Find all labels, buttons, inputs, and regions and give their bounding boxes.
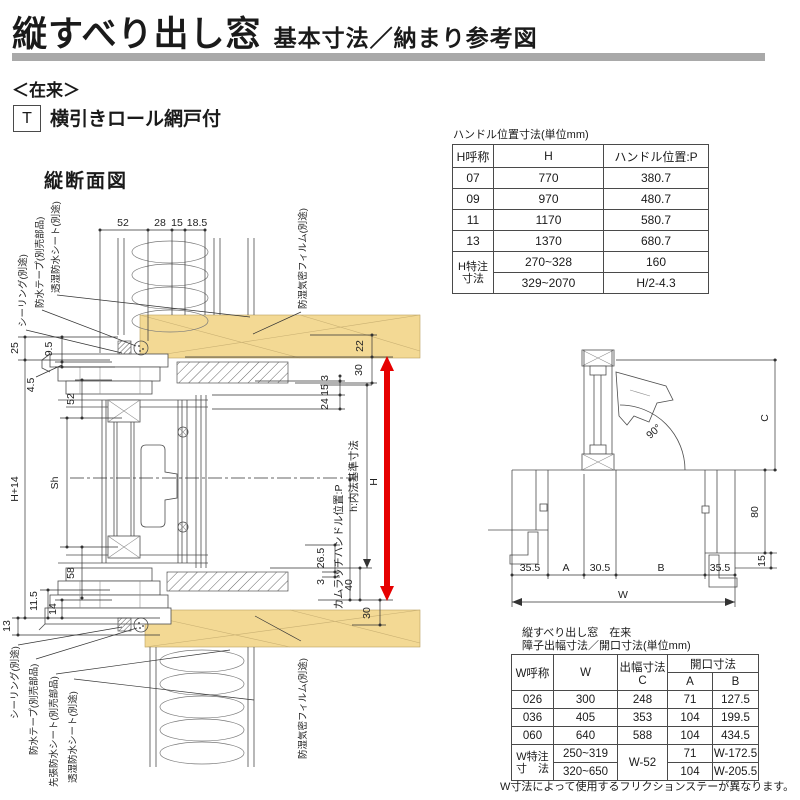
plan-view-drawing: 90° C 80 15 35.5 A 30.5 B 35.5 W <box>480 330 800 625</box>
width-table-note: W寸法によって使用するフリクションステーが異なります。 <box>500 778 794 794</box>
handle-table-header-row: H呼称 H ハンドル位置:P <box>453 145 709 168</box>
width-dimension-table: W呼称 W 出幅寸法C 開口寸法 A B 026 300 248 71 127.… <box>511 654 759 781</box>
cell-w-name: 036 <box>512 709 554 727</box>
dim-28-top: 28 <box>154 217 166 229</box>
dim-h-label: H <box>368 478 380 486</box>
cell-h: 1170 <box>494 210 604 231</box>
col-w-name: W呼称 <box>512 655 554 691</box>
cell-c: 588 <box>618 727 668 745</box>
handle-table-title: ハンドル位置寸法(単位mm) <box>453 129 589 142</box>
callout-pre-sheet-bottom: 先張防水シート(別売部品) <box>48 676 60 787</box>
glass-pane-lines <box>114 422 134 536</box>
dim-26-5-right: 26.5 <box>315 548 327 569</box>
cell-h: 1370 <box>494 231 604 252</box>
callout-sheet-top: 透湿防水シート(別途) <box>50 201 62 293</box>
cell-h: 270~328 <box>494 252 604 273</box>
dim-30-top-right: 30 <box>353 364 365 376</box>
dim-30-bottom-right: 30 <box>361 607 373 619</box>
callout-film-top: 防湿気密フィルム(別途) <box>297 208 309 309</box>
dim-13-left: 13 <box>1 620 13 632</box>
handle-position-table: H呼称 H ハンドル位置:P 07 770 380.7 09 970 480.7… <box>452 144 709 294</box>
handle-custom-row-1: H特注 寸法 270~328 160 <box>453 252 709 273</box>
col-a: A <box>668 673 713 691</box>
w-custom-label-line2: 寸 法 <box>512 763 553 775</box>
dim-11-5-left: 11.5 <box>28 591 40 611</box>
dim-22-right: 22 <box>354 340 366 352</box>
w-custom-label-line1: W特注 <box>512 751 553 763</box>
col-h-name: H呼称 <box>453 145 494 168</box>
cell-p: 160 <box>604 252 709 273</box>
cell-a: 71 <box>668 691 713 709</box>
cell-a: 104 <box>668 709 713 727</box>
handle-row-11: 11 1170 580.7 <box>453 210 709 231</box>
dim-c: C <box>759 414 771 422</box>
cell-h: 770 <box>494 168 604 189</box>
cell-a: 71 <box>668 745 713 763</box>
wood-sill-block <box>145 610 420 647</box>
col-opening: 開口寸法 <box>668 655 759 673</box>
w-custom-label: W特注 寸 法 <box>512 745 554 781</box>
sealing-hatch-bottom <box>118 618 131 631</box>
page-title: 縦すべり出し窓 <box>12 15 262 54</box>
dim-w: W <box>618 589 628 601</box>
sash-section <box>58 395 355 568</box>
friction-stay-bracket <box>616 372 673 425</box>
h-custom-label: H特注 寸法 <box>453 252 494 294</box>
callout-tape-bottom: 防水テープ(別売部品) <box>28 664 40 755</box>
cell-b: W-172.5 <box>713 745 759 763</box>
cell-w-name: 060 <box>512 727 554 745</box>
cell-w: 300 <box>554 691 618 709</box>
dim-3-bottom-right: 3 <box>315 579 327 585</box>
dim-b: B <box>657 562 664 574</box>
cell-w: 250~319 <box>554 745 618 763</box>
callout-film-bottom: 防湿気密フィルム(別途) <box>297 658 309 759</box>
width-row-060: 060 640 588 104 434.5 <box>512 727 759 745</box>
cell-p: 380.7 <box>604 168 709 189</box>
col-b: B <box>713 673 759 691</box>
dim-52-left: 52 <box>65 393 77 405</box>
dim-58-left: 58 <box>65 567 77 579</box>
cell-b: 199.5 <box>713 709 759 727</box>
dim-24-right: 24 <box>319 398 331 410</box>
dim-40-right: 40 <box>343 579 355 591</box>
cell-w: 405 <box>554 709 618 727</box>
col-w: W <box>554 655 618 691</box>
screw-top <box>178 427 188 437</box>
dim-4-5-left: 4.5 <box>25 378 37 393</box>
cell-h: 329~2070 <box>494 273 604 294</box>
cell-p: 480.7 <box>604 189 709 210</box>
dim-35-5-right: 35.5 <box>710 562 731 574</box>
dim-15-plan: 15 <box>756 555 768 567</box>
cam-latch-handle <box>141 445 177 527</box>
open-sash <box>582 350 673 470</box>
system-label: ＜在来＞ <box>12 76 80 101</box>
header-divider-bar <box>12 53 765 61</box>
callout-sealing-top: シーリング(別途) <box>17 254 29 327</box>
vertical-section-title: 縦断面図 <box>44 166 128 193</box>
dim-35-5-left: 35.5 <box>520 562 541 574</box>
cell-p: 680.7 <box>604 231 709 252</box>
handle-row-09: 09 970 480.7 <box>453 189 709 210</box>
callout-tape-top: 防水テープ(別売部品) <box>34 217 46 308</box>
cell-c: 248 <box>618 691 668 709</box>
cell-c-custom: W-52 <box>618 745 668 781</box>
dim-14-left: 14 <box>47 603 59 615</box>
callout-sheet-bottom: 透湿防水シート(別途) <box>67 691 79 783</box>
vertical-section-drawing: 52 28 15 18.5 25 9.5 4.5 52 H+14 Sh 58 1… <box>0 195 440 800</box>
dim-3-top-right: 3 <box>319 375 331 381</box>
screen-rail-lines <box>178 400 187 563</box>
cell-h-name: 13 <box>453 231 494 252</box>
handle-row-13: 13 1370 680.7 <box>453 231 709 252</box>
sill-board-hatch <box>167 572 288 591</box>
width-table-header-row-1: W呼称 W 出幅寸法C 開口寸法 <box>512 655 759 673</box>
callout-sealing-bottom: シーリング(別途) <box>9 646 21 719</box>
swing-angle-label: 90° <box>644 422 664 442</box>
cell-p: H/2-4.3 <box>604 273 709 294</box>
wall-bottom <box>150 647 254 767</box>
cell-c: 353 <box>618 709 668 727</box>
dim-15-right: 15 <box>319 384 331 396</box>
width-table-title-1: 縦すべり出し窓 在来 <box>522 627 691 640</box>
dim-25-left: 25 <box>9 342 21 354</box>
page-header: 縦すべり出し窓基本寸法／納まり参考図 <box>12 6 538 57</box>
inner-height-label: h:内法基準寸法 <box>347 440 360 512</box>
left-jamb <box>488 470 548 564</box>
col-h: H <box>494 145 604 168</box>
type-code-box: T <box>13 105 41 132</box>
dim-a: A <box>562 562 569 574</box>
cell-h-name: 09 <box>453 189 494 210</box>
dim-sh-left: Sh <box>49 476 61 489</box>
dim-15-top: 15 <box>171 217 183 229</box>
page-subtitle: 基本寸法／納まり参考図 <box>274 25 538 51</box>
cell-b: 127.5 <box>713 691 759 709</box>
h-custom-label-line1: H特注 <box>453 261 493 273</box>
sealing-hatch-top <box>118 341 131 354</box>
cell-h: 970 <box>494 189 604 210</box>
h-dimension-red-arrow <box>380 356 394 601</box>
width-custom-row-1: W特注 寸 法 250~319 W-52 71 W-172.5 <box>512 745 759 763</box>
col-c: 出幅寸法C <box>618 655 668 691</box>
handle-row-07: 07 770 380.7 <box>453 168 709 189</box>
insulation-bottom <box>160 650 244 764</box>
dim-h14-left: H+14 <box>9 476 21 502</box>
width-row-026: 026 300 248 71 127.5 <box>512 691 759 709</box>
dim-30-5: 30.5 <box>590 562 611 574</box>
cell-w-name: 026 <box>512 691 554 709</box>
cell-h-name: 07 <box>453 168 494 189</box>
width-table-title-2: 障子出幅寸法／開口寸法(単位mm) <box>522 640 691 653</box>
type-label: 横引きロール網戸付 <box>50 104 221 131</box>
col-p: ハンドル位置:P <box>604 145 709 168</box>
head-board-hatch <box>177 362 288 383</box>
screw-bottom <box>178 522 188 532</box>
width-table-titles: 縦すべり出し窓 在来 障子出幅寸法／開口寸法(単位mm) <box>522 627 691 653</box>
dim-9-5-left: 9.5 <box>43 342 55 357</box>
dim-52-top: 52 <box>117 217 129 229</box>
h-custom-label-line2: 寸法 <box>453 273 493 285</box>
dim-80: 80 <box>749 506 761 518</box>
cell-a: 104 <box>668 727 713 745</box>
cell-h-name: 11 <box>453 210 494 231</box>
cell-b: 434.5 <box>713 727 759 745</box>
cell-p: 580.7 <box>604 210 709 231</box>
width-row-036: 036 405 353 104 199.5 <box>512 709 759 727</box>
cell-w: 640 <box>554 727 618 745</box>
dim-18-5-top: 18.5 <box>187 217 208 229</box>
